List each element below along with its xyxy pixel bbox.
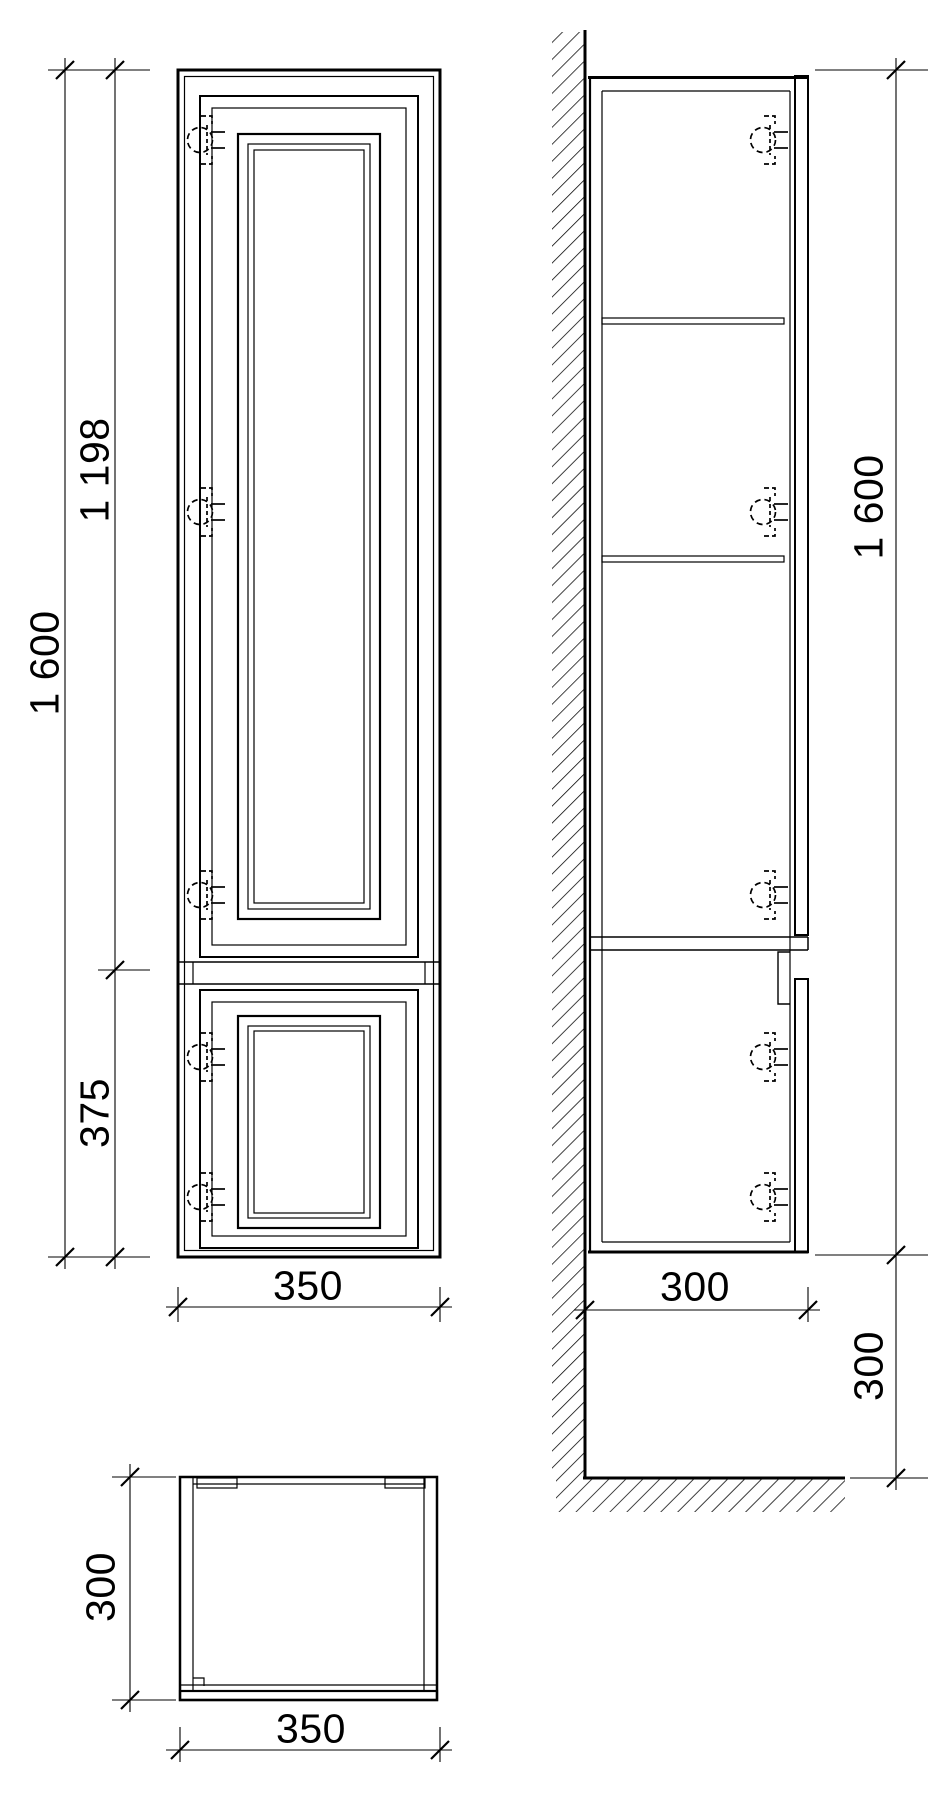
hinge-icon (751, 116, 789, 164)
drawing-linework (0, 0, 943, 1800)
side-upper-door (795, 76, 808, 935)
front-mid-rail (178, 962, 440, 984)
shelf (602, 318, 784, 324)
dim-front-height-total-label: 1 600 (25, 610, 66, 715)
dim-side-depth-label: 300 (660, 1267, 730, 1308)
side-lower-door (795, 979, 808, 1252)
front-lower-door (200, 990, 418, 1248)
front-upper-door (200, 96, 418, 957)
shelf (602, 556, 784, 562)
front-view (178, 70, 440, 1257)
cabinet-technical-drawing: 1 600 1 198 375 350 1 600 300 300 300 35… (0, 0, 943, 1800)
dim-front-upper-door-label: 1 198 (75, 417, 116, 522)
hinge-icon (751, 1033, 789, 1081)
front-hinge-icons (188, 116, 226, 1221)
top-carcass-outline (180, 1477, 437, 1700)
dim-front-width-label: 350 (273, 1266, 343, 1307)
hinge-plate (385, 1478, 425, 1488)
front-carcass-outline (178, 70, 440, 1257)
hinge-icon (188, 871, 226, 919)
dim-front-lower-door-label: 375 (75, 1078, 116, 1148)
top-door-slab (180, 1691, 437, 1700)
hinge-icon (188, 1033, 226, 1081)
hinge-icon (188, 488, 226, 536)
hinge-icon (188, 116, 226, 164)
hinge-icon (751, 871, 789, 919)
hinge-icon (751, 1173, 789, 1221)
hinge-icon (751, 488, 789, 536)
side-view-dimensions (574, 58, 928, 1490)
door-recess (778, 952, 790, 1004)
dim-side-floor-clearance-label: 300 (849, 1331, 890, 1401)
hinge-plate (197, 1478, 237, 1488)
floor-hatching (556, 1478, 845, 1512)
top-view (180, 1477, 437, 1700)
dim-top-depth-label: 300 (81, 1552, 122, 1622)
hinge-icon (188, 1173, 226, 1221)
side-divider (590, 937, 808, 950)
side-hinge-icons (751, 116, 789, 1221)
dim-top-width-label: 350 (276, 1709, 346, 1750)
wall-hatching (552, 32, 585, 1478)
dim-side-height-total-label: 1 600 (849, 454, 890, 559)
